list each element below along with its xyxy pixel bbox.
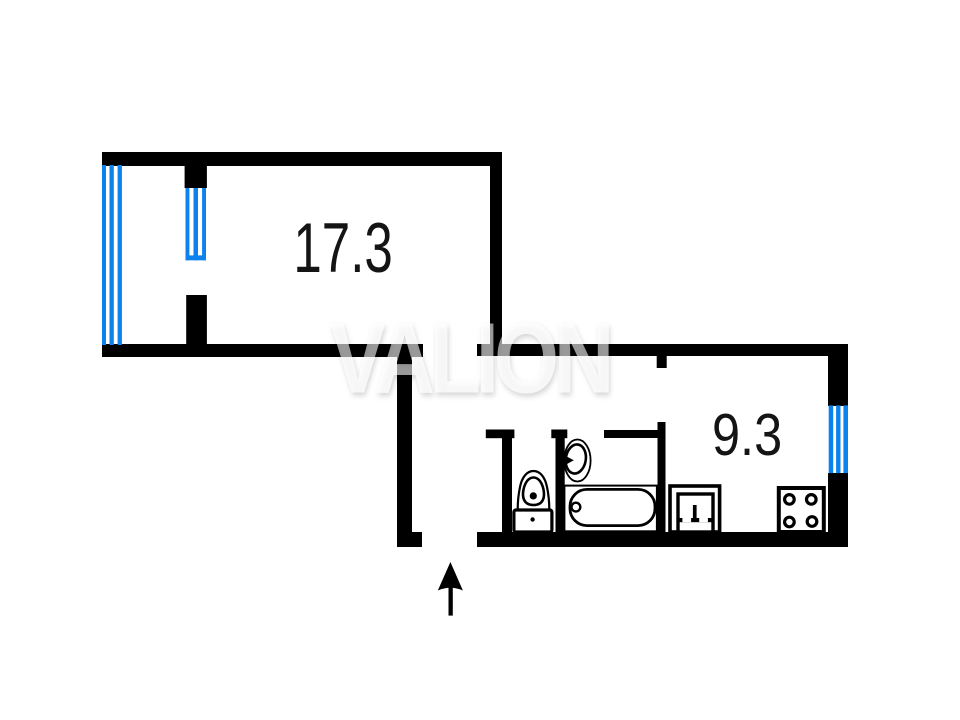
svg-text:17.3: 17.3 [293, 209, 392, 288]
svg-text:VALION: VALION [330, 302, 609, 414]
svg-text:9.3: 9.3 [712, 401, 782, 468]
